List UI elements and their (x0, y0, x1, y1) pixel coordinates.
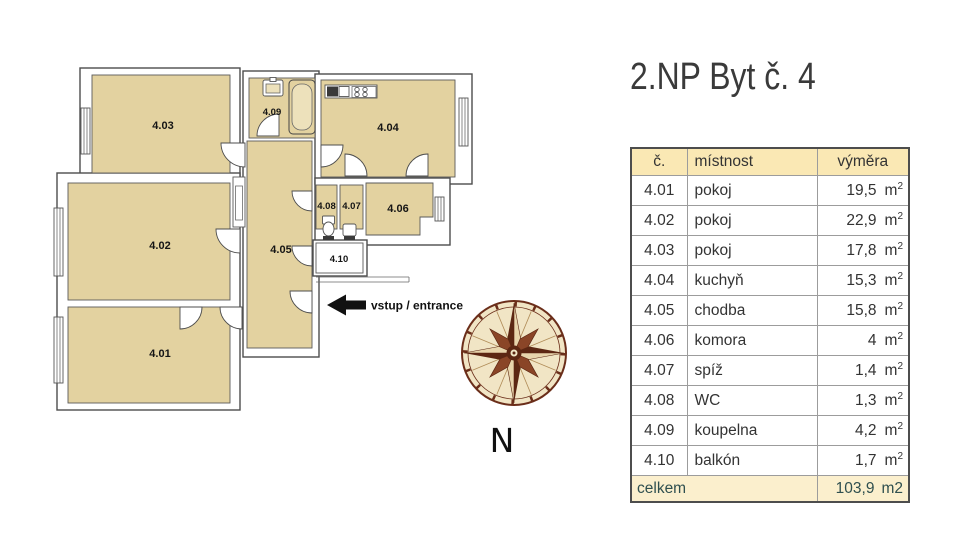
room-area-cell: 15,8m2 (817, 296, 909, 326)
room-id-cell: 4.02 (631, 206, 687, 236)
room-label-4-02: 4.02 (149, 240, 170, 252)
room-name-cell: pokoj (687, 236, 817, 266)
room-area-cell: 1,4m2 (817, 356, 909, 386)
room-name-cell: komora (687, 326, 817, 356)
header-id: č. (631, 148, 687, 176)
table-row: 4.04 kuchyň 15,3m2 (631, 266, 909, 296)
table-row: 4.01 pokoj 19,5m2 (631, 176, 909, 206)
room-label-4-05: 4.05 (270, 244, 291, 256)
room-label-4-08: 4.08 (317, 201, 336, 212)
room-area-cell: 1,7m2 (817, 446, 909, 476)
room-id-cell: 4.06 (631, 326, 687, 356)
room-name-cell: chodba (687, 296, 817, 326)
kitchen-counter (325, 85, 377, 98)
room-name-cell: koupelna (687, 416, 817, 446)
header-name: místnost (687, 148, 817, 176)
table-row: 4.09 koupelna 4,2m2 (631, 416, 909, 446)
room-name-cell: WC (687, 386, 817, 416)
table-row: 4.06 komora 4m2 (631, 326, 909, 356)
room-id-cell: 4.10 (631, 446, 687, 476)
room-area-cell: 19,5m2 (817, 176, 909, 206)
room-area-cell: 22,9m2 (817, 206, 909, 236)
window-404 (459, 98, 468, 146)
table-row: 4.07 spíž 1,4m2 (631, 356, 909, 386)
total-value-cell: 103,9m2 (817, 476, 909, 503)
room-area-cell: 1,3m2 (817, 386, 909, 416)
basin-icon (343, 224, 356, 240)
compass-rose-icon (462, 301, 566, 405)
total-label-cell: celkem (631, 476, 817, 503)
entrance-arrow-icon (327, 295, 366, 316)
room-area-cell: 15,3m2 (817, 266, 909, 296)
window-402 (54, 208, 63, 276)
room-area-cell: 4,2m2 (817, 416, 909, 446)
room-name-cell: pokoj (687, 176, 817, 206)
room-area-cell: 4m2 (817, 326, 909, 356)
window-401 (54, 317, 63, 383)
room-id-cell: 4.05 (631, 296, 687, 326)
toilet-icon (323, 216, 335, 240)
table-row: 4.08 WC 1,3m2 (631, 386, 909, 416)
room-id-cell: 4.07 (631, 356, 687, 386)
room-label-4-09: 4.09 (263, 107, 282, 118)
window-406 (435, 197, 444, 221)
room-label-4-03: 4.03 (152, 120, 173, 132)
table-row: 4.03 pokoj 17,8m2 (631, 236, 909, 266)
room-name-cell: spíž (687, 356, 817, 386)
page: 4.03 4.02 4.01 4.05 4.09 4.04 4.08 4.07 … (0, 0, 960, 540)
room-name-cell: pokoj (687, 206, 817, 236)
room-label-4-04: 4.04 (377, 122, 399, 134)
sink-icon (263, 78, 283, 97)
balcony-railing (316, 277, 409, 282)
table-row: 4.10 balkón 1,7m2 (631, 446, 909, 476)
room-id-cell: 4.04 (631, 266, 687, 296)
room-id-cell: 4.03 (631, 236, 687, 266)
kitchen-sink-icon (327, 87, 338, 97)
table-row: 4.05 chodba 15,8m2 (631, 296, 909, 326)
compass-label: N (490, 421, 515, 460)
shaft-niche (233, 177, 245, 227)
floorplan: 4.03 4.02 4.01 4.05 4.09 4.04 4.08 4.07 … (0, 0, 600, 540)
table-header-row: č. místnost výměra (631, 148, 909, 176)
table-total-row: celkem 103,9m2 (631, 476, 909, 503)
table-row: 4.02 pokoj 22,9m2 (631, 206, 909, 236)
room-name-cell: kuchyň (687, 266, 817, 296)
bathtub-icon (289, 80, 315, 134)
header-area: výměra (817, 148, 909, 176)
room-label-4-01: 4.01 (149, 348, 170, 360)
window-403 (81, 108, 90, 154)
area-table: č. místnost výměra 4.01 pokoj 19,5m2 4.0… (630, 147, 910, 503)
room-label-4-06: 4.06 (387, 203, 408, 215)
room-id-cell: 4.01 (631, 176, 687, 206)
room-area-cell: 17,8m2 (817, 236, 909, 266)
room-label-4-07: 4.07 (342, 201, 361, 212)
room-id-cell: 4.09 (631, 416, 687, 446)
page-title: 2.NP Byt č. 4 (630, 56, 816, 99)
entrance-label: vstup / entrance (371, 299, 463, 313)
room-name-cell: balkón (687, 446, 817, 476)
room-label-4-10: 4.10 (330, 254, 349, 265)
room-id-cell: 4.08 (631, 386, 687, 416)
